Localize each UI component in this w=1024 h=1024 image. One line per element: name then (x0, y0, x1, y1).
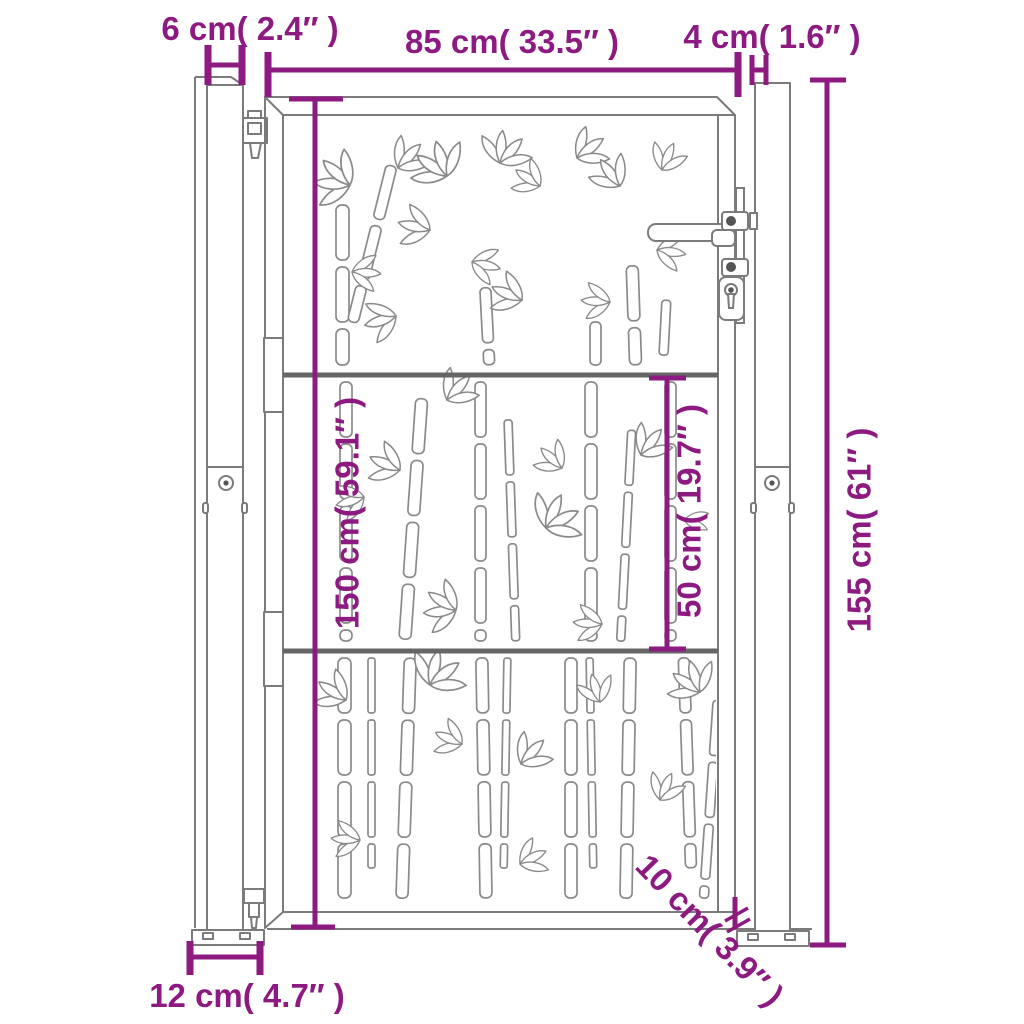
gate-dimension-diagram: 6 cm( 2.4″ ) 85 cm( 33.5″ ) 4 cm( 1.6″ )… (0, 0, 1024, 1024)
dim-label-gate-width: 85 cm( 33.5″ ) (405, 23, 619, 60)
dim-label-base-plate-width: 12 cm( 4.7″ ) (149, 977, 345, 1014)
dim-line-right-post-width (752, 55, 766, 85)
top-hinge-icon (243, 111, 267, 158)
dim-label-left-post-width: 6 cm( 2.4″ ) (161, 10, 338, 47)
left-post (192, 77, 267, 945)
hinge-plate-icon (264, 612, 283, 686)
diagram-canvas: 6 cm( 2.4″ ) 85 cm( 33.5″ ) 4 cm( 1.6″ )… (0, 0, 1024, 1024)
dim-label-total-height: 155 cm( 61″ ) (841, 428, 878, 633)
bottom-hinge-icon (244, 889, 264, 928)
dim-label-gate-height: 150 cm( 59.1″ ) (329, 397, 366, 629)
dim-label-right-post-width: 4 cm( 1.6″ ) (683, 18, 860, 55)
latch-keeper-icon (750, 213, 757, 229)
hinge-plate-icon (264, 338, 283, 412)
dim-label-section-height: 50 cm( 19.7″ ) (671, 404, 708, 618)
